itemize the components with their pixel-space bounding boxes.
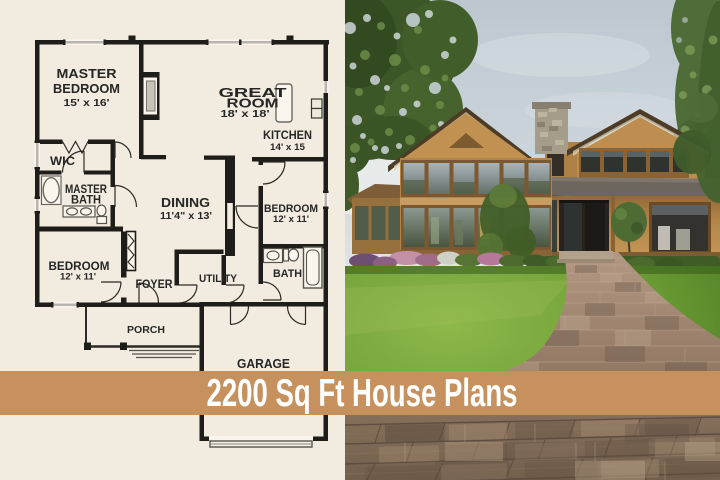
svg-text:BEDROOM: BEDROOM	[53, 81, 120, 96]
svg-text:KITCHEN: KITCHEN	[263, 130, 312, 142]
svg-text:DINING: DINING	[161, 195, 210, 210]
svg-text:UTILITY: UTILITY	[199, 273, 238, 285]
svg-text:2200 Sq Ft House Plans: 2200 Sq Ft House Plans	[207, 372, 518, 415]
svg-text:15' x 16': 15' x 16'	[64, 98, 110, 109]
svg-text:12' x 11': 12' x 11'	[60, 272, 96, 283]
svg-text:PORCH: PORCH	[127, 324, 165, 336]
svg-text:BATH: BATH	[273, 268, 302, 280]
svg-text:18' x 18': 18' x 18'	[221, 109, 270, 120]
svg-text:GARAGE: GARAGE	[237, 357, 290, 371]
svg-text:BATH: BATH	[71, 195, 101, 207]
svg-text:MASTER: MASTER	[57, 66, 118, 81]
svg-text:FOYER: FOYER	[136, 279, 174, 291]
svg-text:12' x 11': 12' x 11'	[273, 214, 309, 225]
svg-text:11'4" x 13': 11'4" x 13'	[160, 211, 212, 222]
svg-text:WIC: WIC	[50, 156, 75, 168]
svg-text:14' x 15: 14' x 15	[270, 142, 306, 153]
